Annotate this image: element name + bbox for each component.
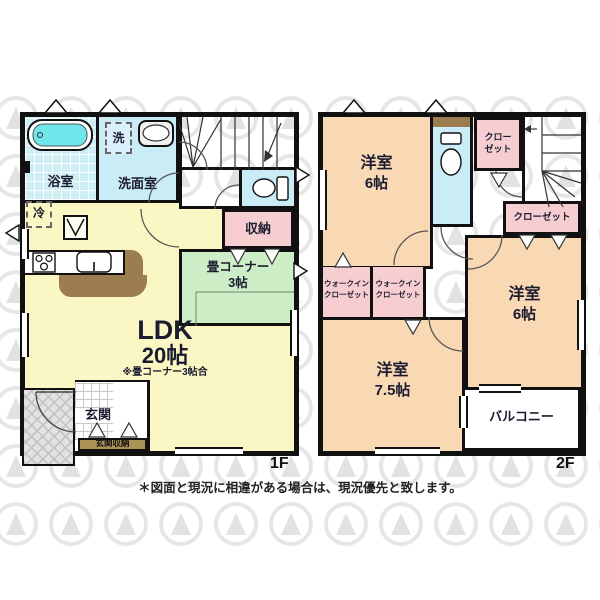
vent-arrow-right-icon	[294, 166, 311, 184]
watermark-logo	[49, 502, 93, 546]
watermark-logo	[434, 502, 478, 546]
watermark-logo	[214, 502, 258, 546]
vent-triangle-icon	[44, 99, 68, 114]
vent-triangle-icon	[424, 99, 448, 114]
floor-label-2f: 2F	[556, 455, 575, 473]
watermark-logo	[324, 502, 368, 546]
door-v-marks-1f	[89, 249, 280, 437]
watermark-logo	[379, 502, 423, 546]
watermark-logo	[544, 502, 588, 546]
toilet-icon-2f	[441, 133, 461, 175]
floor-label-1f: 1F	[270, 455, 289, 473]
stairs-arrow-2f	[524, 125, 531, 133]
window-bottom-bedroom75	[375, 447, 440, 456]
vent-triangle-icon	[342, 99, 366, 114]
vent-arrow-right-icon	[292, 262, 309, 280]
watermark-logo	[159, 502, 203, 546]
entrance-door-arc	[33, 389, 79, 435]
door-v-marks-2f	[335, 173, 567, 334]
vent-triangle-icon	[98, 99, 122, 114]
window-left-ldk	[20, 313, 29, 357]
window-balcony-left	[459, 396, 468, 428]
stairs-steps-2f	[526, 117, 581, 207]
window-right-ldk	[290, 310, 299, 356]
f2-symbol-overlay	[323, 117, 581, 451]
vent-arrow-left-icon	[4, 224, 21, 242]
watermark-logo	[489, 502, 533, 546]
watermark-logo	[104, 502, 148, 546]
stairs-steps-1f	[179, 117, 281, 170]
toilet-icon-1f	[253, 177, 288, 200]
floorplan-canvas: 浴室 洗 洗面室 収納 畳コーナー 3帖	[0, 0, 600, 600]
floor-2f: 洋室 6帖 クロー ゼット クローゼット 洋室 6帖 ウォークイン クローゼット…	[318, 112, 586, 456]
window-right-bedroom6b	[577, 300, 586, 350]
window-bottom-ldk	[175, 447, 243, 456]
window-left-kitchen	[20, 229, 29, 259]
window-balcony-top	[479, 384, 521, 393]
window-left-bedroom6a	[318, 170, 327, 230]
disclaimer-note: ＊図面と現況に相違がある場合は、現況優先と致します。	[0, 477, 600, 496]
watermark-logo	[0, 502, 38, 546]
watermark-logo	[269, 502, 313, 546]
